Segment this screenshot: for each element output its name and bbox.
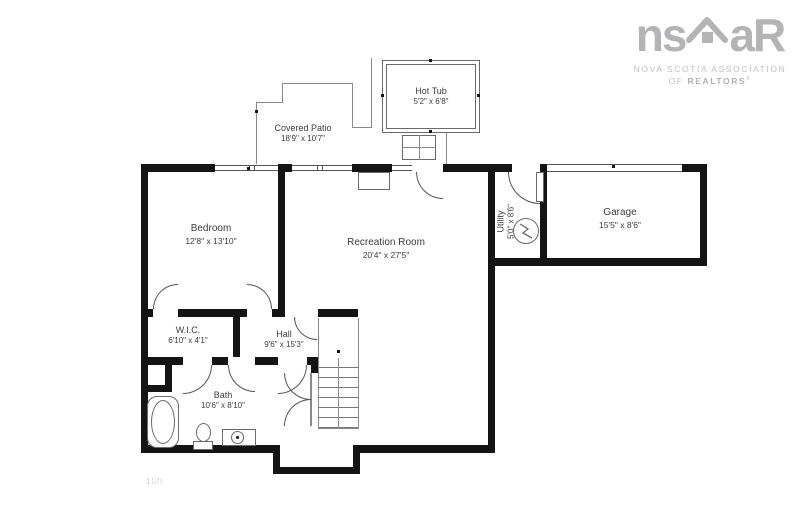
- tick: [209, 310, 212, 313]
- tick: [429, 59, 432, 62]
- room-label-bedroom: Bedroom 12'8" x 13'10": [151, 222, 271, 247]
- wall: [352, 164, 392, 172]
- wall: [212, 357, 228, 365]
- room-label-patio: Covered Patio 18'9" x 10'7": [243, 122, 363, 145]
- door-arc: [228, 365, 255, 392]
- room-label-bath: Bath 10'6" x 8'10": [173, 389, 273, 412]
- wall: [700, 164, 707, 265]
- tick: [702, 211, 705, 214]
- floor-plan: Hot Tub 5'2" x 6'8": [0, 0, 808, 516]
- room-label-garage: Garage 15'5" x 8'6": [560, 206, 680, 231]
- patio-outline: [282, 83, 352, 84]
- tick: [309, 468, 312, 471]
- wall: [307, 357, 318, 365]
- logo-subtitle: NOVA SCOTIA ASSOCIATION: [622, 64, 798, 74]
- wall: [141, 385, 172, 392]
- window-mullion: [322, 165, 323, 171]
- scale-watermark: 10ft: [146, 477, 163, 486]
- wall: [255, 357, 278, 365]
- patio-outline: [371, 58, 372, 128]
- wall: [272, 309, 285, 317]
- registered-mark: ®: [746, 76, 751, 82]
- toilet: [196, 423, 211, 442]
- bump-out-wall: [353, 445, 360, 474]
- tick: [429, 130, 432, 133]
- logo-text-ar: aR: [729, 15, 784, 56]
- wall: [488, 258, 495, 453]
- wall: [278, 164, 285, 317]
- patio-step: [358, 172, 390, 190]
- room-label-recreation: Recreation Room 20'4" x 27'5": [326, 236, 446, 261]
- tick: [490, 348, 493, 351]
- tick: [612, 165, 615, 168]
- tick: [381, 94, 384, 97]
- stairs-outline: [358, 318, 359, 429]
- sink-drain: [236, 436, 239, 439]
- tick: [419, 446, 422, 449]
- wall: [443, 164, 488, 172]
- bathtub-basin: [151, 400, 175, 444]
- wall: [141, 164, 215, 172]
- tick: [189, 446, 192, 449]
- room-label-hot-tub: Hot Tub 5'2" x 6'8": [382, 85, 480, 108]
- door-arc: [284, 399, 311, 426]
- stairs-outline: [318, 428, 359, 429]
- lightning-icon: [516, 221, 536, 241]
- bump-out-wall: [273, 467, 360, 474]
- wall: [488, 258, 707, 266]
- window: [392, 165, 412, 171]
- window-mullion: [254, 165, 255, 171]
- logo-subtitle-2: OF REALTORS®: [622, 76, 798, 86]
- door-arc: [247, 284, 272, 309]
- tick: [247, 167, 250, 170]
- wall: [318, 309, 358, 317]
- tick: [594, 259, 597, 262]
- door-arc: [416, 172, 443, 199]
- stairs-divider: [338, 358, 339, 428]
- tick: [337, 350, 340, 353]
- patio-steps: [402, 147, 436, 148]
- door-arc: [153, 284, 178, 309]
- window-mullion: [317, 165, 318, 171]
- nsar-logo-wordmark: ns aR: [622, 14, 798, 56]
- tick: [143, 408, 146, 411]
- room-label-hall: Hall 9'6" x 15'3": [234, 328, 334, 351]
- patio-outline: [282, 83, 283, 103]
- tick: [143, 237, 146, 240]
- nsar-logo: ns aR NOVA SCOTIA ASSOCIATION OF REALTOR…: [622, 14, 798, 86]
- logo-text-ns: ns: [636, 15, 686, 56]
- toilet-tank: [193, 441, 213, 450]
- tick: [477, 94, 480, 97]
- wall: [488, 164, 512, 172]
- patio-outline: [256, 102, 282, 103]
- room-label-utility: Utility 5'0" x 8'6": [495, 186, 518, 256]
- house-icon: [686, 14, 728, 54]
- room-label-wic: W.I.C. 6'10" x 4'1": [138, 324, 238, 347]
- wall: [141, 309, 153, 317]
- tick: [255, 110, 258, 113]
- wall: [141, 357, 183, 365]
- wall: [353, 445, 495, 453]
